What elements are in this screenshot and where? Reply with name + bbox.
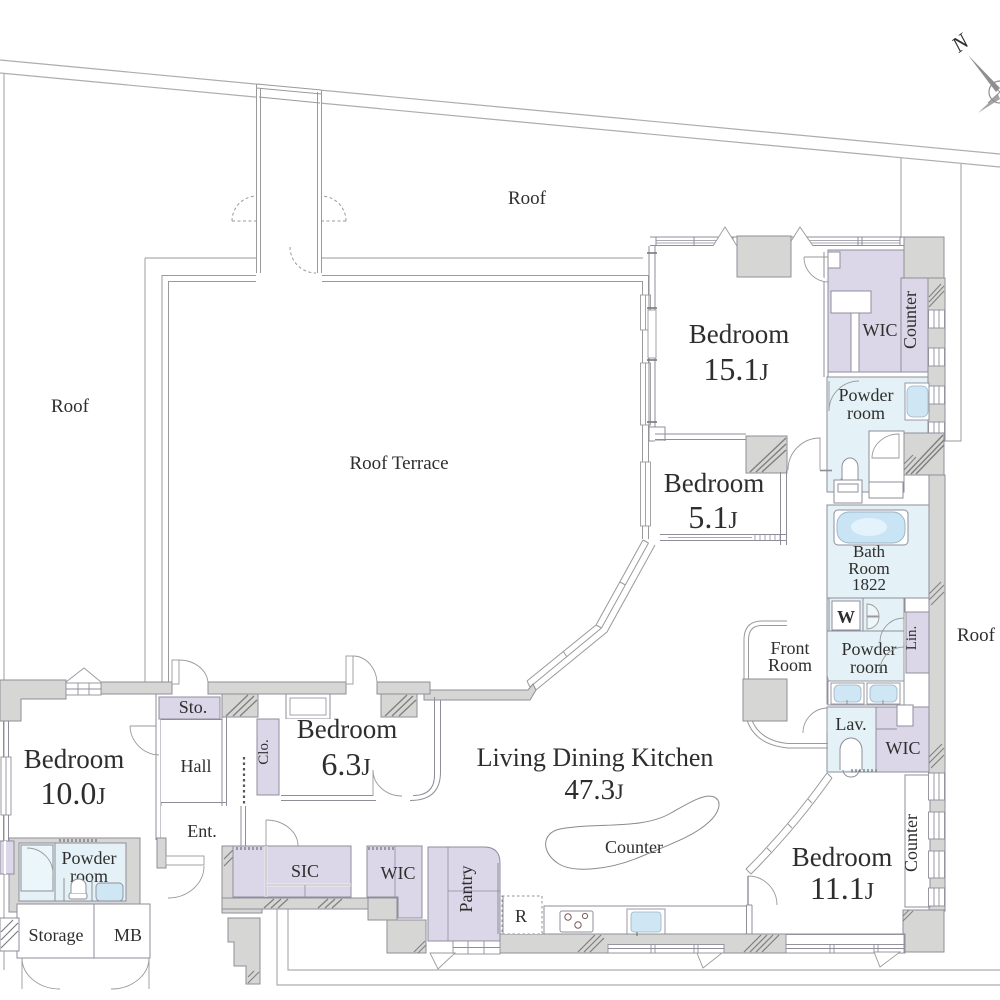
svg-text:Bedroom: Bedroom (24, 744, 125, 774)
svg-text:Hall: Hall (181, 756, 212, 776)
svg-text:Storage: Storage (29, 925, 84, 945)
svg-text:Sto.: Sto. (179, 697, 208, 717)
svg-text:Bedroom: Bedroom (297, 714, 398, 744)
svg-text:Living Dining Kitchen: Living Dining Kitchen (477, 743, 714, 772)
svg-text:47.3J: 47.3J (564, 774, 624, 806)
svg-text:WIC: WIC (381, 863, 416, 883)
svg-text:11.1J: 11.1J (810, 870, 874, 906)
svg-text:Ent.: Ent. (187, 821, 217, 841)
svg-text:W: W (837, 607, 855, 627)
svg-text:room: room (847, 403, 885, 423)
svg-text:10.0J: 10.0J (40, 775, 105, 811)
svg-text:1822: 1822 (852, 575, 886, 594)
svg-text:Counter: Counter (900, 291, 920, 349)
svg-text:Bedroom: Bedroom (689, 319, 790, 349)
svg-text:Powder: Powder (839, 385, 894, 405)
svg-text:MB: MB (114, 925, 142, 945)
svg-text:Bedroom: Bedroom (664, 468, 765, 498)
svg-text:15.1J: 15.1J (703, 351, 768, 387)
svg-text:Lav.: Lav. (835, 714, 866, 734)
svg-text:Lin.: Lin. (904, 626, 920, 651)
svg-text:SIC: SIC (291, 861, 319, 881)
svg-text:Roof: Roof (508, 188, 547, 209)
svg-text:Pantry: Pantry (456, 866, 476, 913)
svg-text:Counter: Counter (901, 814, 921, 872)
svg-text:Roof: Roof (957, 625, 996, 646)
svg-text:Powder: Powder (62, 848, 117, 868)
svg-text:R: R (515, 906, 527, 926)
svg-text:Roof Terrace: Roof Terrace (349, 453, 448, 474)
svg-text:WIC: WIC (886, 738, 921, 758)
svg-text:Room: Room (768, 655, 812, 675)
svg-text:Bedroom: Bedroom (792, 842, 893, 872)
svg-text:Clo.: Clo. (256, 739, 272, 764)
svg-text:Counter: Counter (605, 837, 663, 857)
svg-text:WIC: WIC (863, 320, 898, 340)
svg-text:Roof: Roof (51, 396, 90, 417)
svg-text:Powder: Powder (842, 639, 897, 659)
